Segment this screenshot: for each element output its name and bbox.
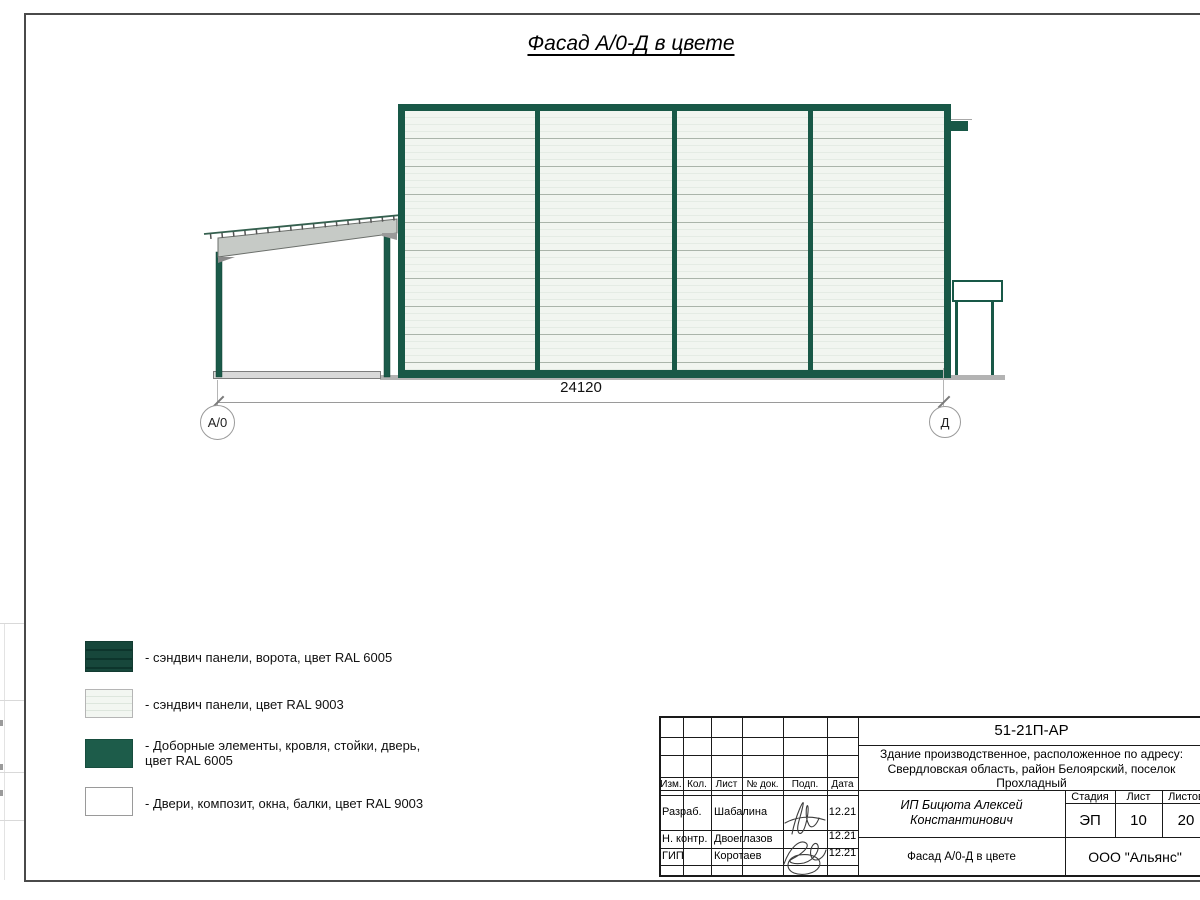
canopy-left-post (216, 252, 222, 377)
sheet-label: Лист (1115, 791, 1162, 803)
drawing-name: Фасад А/0-Д в цвете (858, 851, 1065, 863)
col-header-data: Дата (827, 779, 858, 790)
stage-value: ЭП (1065, 812, 1115, 829)
axis-label: Д (941, 415, 950, 430)
legend-label: - Доборные элементы, кровля, стойки, две… (145, 738, 475, 768)
margin-line (0, 623, 24, 624)
dimension-line (218, 402, 944, 403)
canopy-structure (195, 205, 410, 385)
row-name: Двоеглазов (714, 833, 772, 845)
axis-marker-right: Д (929, 406, 961, 438)
dimension-value: 24120 (521, 379, 641, 396)
stage-label: Стадия (1065, 791, 1115, 803)
margin-mark (0, 790, 3, 796)
margin-mark (0, 720, 3, 726)
legend-label: - сэндвич панели, цвет RAL 9003 (145, 697, 475, 712)
margin-line (0, 700, 24, 701)
legend-swatch-panel-white (85, 689, 133, 718)
page-title: Фасад А/0-Д в цвете (431, 32, 831, 56)
legend-label: - Двери, композит, окна, балки, цвет RAL… (145, 796, 485, 811)
grid-line (659, 737, 858, 738)
gutter-outlet (951, 121, 968, 131)
row-name: Коротаев (714, 850, 762, 862)
row-name: Шабалина (714, 806, 767, 818)
grid-line (659, 755, 858, 756)
signature-razrab (785, 803, 825, 834)
col-header-izm: Изм. (659, 779, 683, 790)
margin-mark (0, 764, 3, 770)
grid-line (711, 716, 712, 877)
row-role: ГИП (662, 850, 684, 862)
drawing-sheet: Фасад А/0-Д в цвете 24120 А/0 Д - сэндви… (0, 0, 1200, 900)
grid-line (858, 837, 1200, 838)
col-header-list: Лист (711, 779, 742, 790)
legend-swatch-doors-white (85, 787, 133, 816)
porch-post (991, 302, 994, 375)
sheets-value: 20 (1162, 812, 1200, 829)
grid-line (1065, 803, 1200, 804)
row-role: Разраб. (662, 806, 702, 818)
margin-line (0, 820, 24, 821)
porch-post (955, 302, 958, 375)
row-role: Н. контр. (662, 833, 707, 845)
col-header-doc: № док. (742, 779, 783, 790)
project-description: Здание производственное, расположенное п… (860, 747, 1200, 791)
col-header-podp: Подп. (783, 779, 827, 790)
facade-mullion (808, 111, 813, 370)
doc-number: 51-21П-АР (858, 722, 1200, 739)
legend-swatch-gate-green (85, 641, 133, 672)
axis-label: А/0 (208, 415, 228, 430)
porch-header (952, 280, 1003, 302)
sheets-label: Листов (1162, 791, 1200, 803)
margin-line (4, 623, 5, 880)
signatures (778, 792, 834, 878)
margin-line (0, 772, 24, 773)
sheet-value: 10 (1115, 812, 1162, 829)
grid-line (659, 777, 858, 778)
facade-mullion (535, 111, 540, 370)
canopy-right-post (384, 230, 390, 377)
building-facade (398, 104, 951, 378)
gutter-edge (951, 119, 972, 120)
organization-name: ООО "Альянс" (1065, 849, 1200, 865)
signature-gip (784, 842, 826, 874)
facade-mullion (672, 111, 677, 370)
axis-marker-left: А/0 (200, 405, 235, 440)
grid-line (858, 745, 1200, 746)
legend-label: - сэндвич панели, ворота, цвет RAL 6005 (145, 650, 475, 665)
client-name: ИП Бицюта Алексей Константинович (860, 798, 1063, 828)
legend-swatch-trim-green (85, 739, 133, 768)
col-header-kol: Кол. (683, 779, 711, 790)
